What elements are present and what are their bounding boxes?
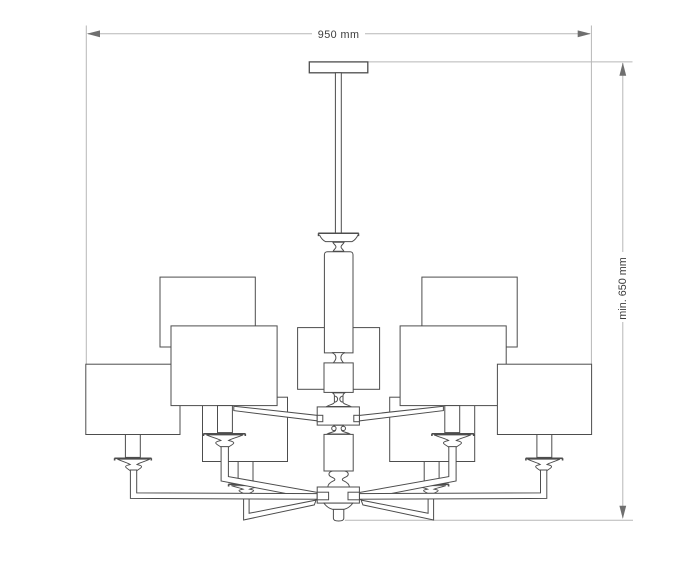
svg-text:950 mm: 950 mm bbox=[318, 29, 360, 41]
svg-text:min. 650 mm: min. 650 mm bbox=[617, 257, 629, 319]
